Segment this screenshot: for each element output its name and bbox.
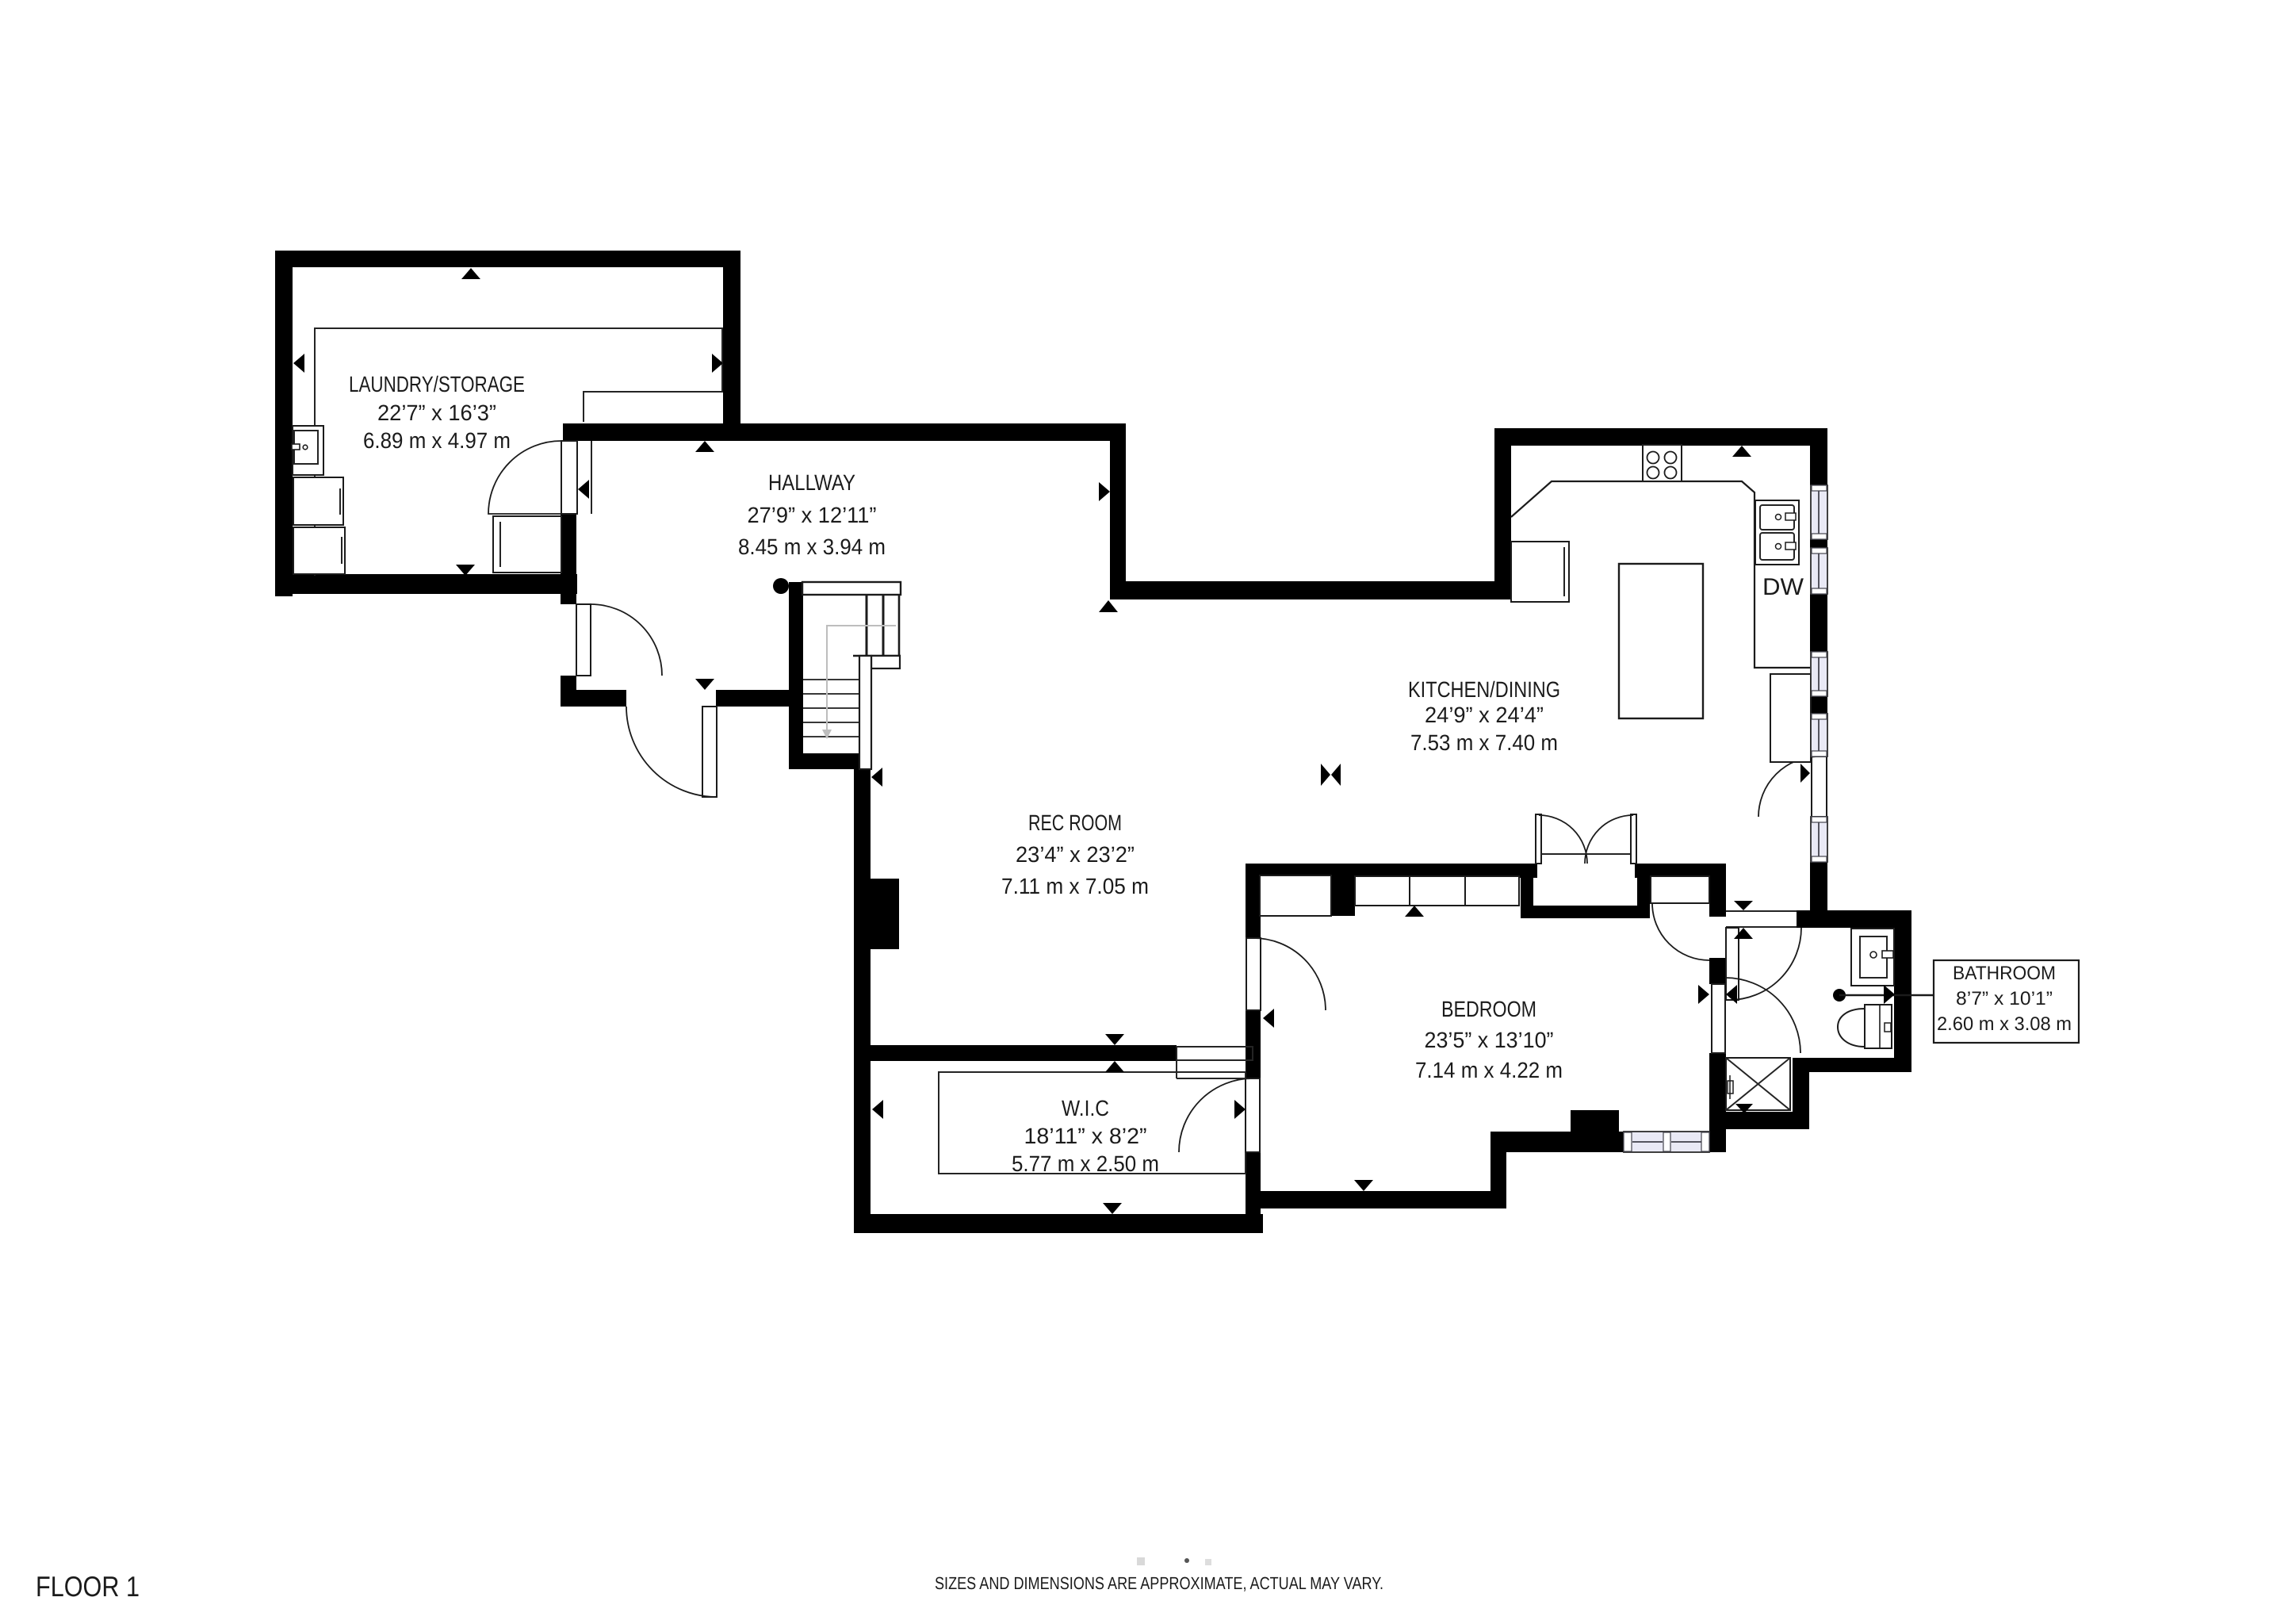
svg-text:8.45 m x 3.94 m: 8.45 m x 3.94 m: [738, 534, 886, 559]
svg-text:7.11 m x 7.05 m: 7.11 m x 7.05 m: [1001, 874, 1149, 898]
svg-text:SIZES AND DIMENSIONS ARE APPRO: SIZES AND DIMENSIONS ARE APPROXIMATE, AC…: [935, 1573, 1383, 1593]
svg-text:6.89 m x 4.97 m: 6.89 m x 4.97 m: [363, 428, 511, 453]
svg-text:24’9” x 24’4”: 24’9” x 24’4”: [1425, 703, 1544, 727]
svg-text:W.I.C: W.I.C: [1062, 1096, 1109, 1120]
svg-text:23’4” x 23’2”: 23’4” x 23’2”: [1016, 842, 1135, 867]
svg-text:7.14 m x 4.22 m: 7.14 m x 4.22 m: [1415, 1058, 1563, 1082]
svg-text:2.60 m x 3.08 m: 2.60 m x 3.08 m: [1937, 1013, 2072, 1035]
svg-text:5.77 m x 2.50 m: 5.77 m x 2.50 m: [1012, 1151, 1159, 1176]
svg-text:18’11” x 8’2”: 18’11” x 8’2”: [1024, 1124, 1147, 1148]
svg-text:7.53 m x 7.40 m: 7.53 m x 7.40 m: [1410, 730, 1558, 755]
svg-text:REC ROOM: REC ROOM: [1028, 810, 1122, 835]
svg-text:27’9” x 12’11”: 27’9” x 12’11”: [748, 503, 877, 527]
svg-text:FLOOR 1: FLOOR 1: [36, 1570, 140, 1603]
svg-text:LAUNDRY/STORAGE: LAUNDRY/STORAGE: [349, 372, 525, 396]
svg-text:HALLWAY: HALLWAY: [768, 470, 855, 495]
svg-text:8’7” x 10’1”: 8’7” x 10’1”: [1956, 988, 2053, 1009]
svg-text:KITCHEN/DINING: KITCHEN/DINING: [1408, 677, 1560, 702]
svg-text:DW: DW: [1762, 574, 1804, 600]
svg-text:BEDROOM: BEDROOM: [1441, 997, 1536, 1021]
svg-text:BATHROOM: BATHROOM: [1953, 963, 2056, 984]
svg-text:23’5” x 13’10”: 23’5” x 13’10”: [1425, 1028, 1554, 1052]
svg-text:22’7” x 16’3”: 22’7” x 16’3”: [377, 400, 496, 425]
